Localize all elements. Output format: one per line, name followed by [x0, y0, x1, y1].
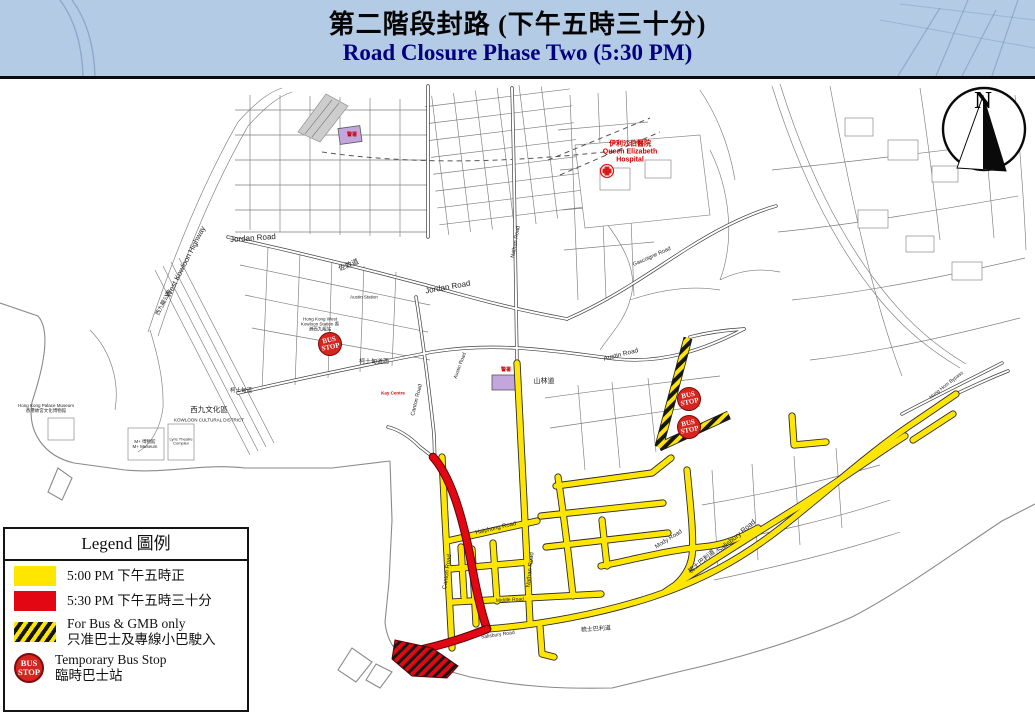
bus-stop-icon: BUSSTOP — [14, 653, 44, 683]
route-phase1-yellow-5pm — [442, 363, 956, 657]
page-title-chinese: 第二階段封路 (下午五時三十分) — [329, 10, 707, 40]
hospital-cross-icon — [601, 165, 614, 178]
title-bar: 第二階段封路 (下午五時三十分) Road Closure Phase Two … — [0, 0, 1035, 79]
minor-streets — [48, 79, 1026, 580]
legend-swatch-red — [14, 591, 56, 611]
legend-row-bus-gmb: For Bus & GMB only 只准巴士及專線小巴駛入 — [5, 611, 247, 647]
road-closure-map-page: 第二階段封路 (下午五時三十分) Road Closure Phase Two … — [0, 0, 1035, 714]
legend-label-temp-bus-stop: Temporary Bus Stop 臨時巴士站 — [55, 652, 167, 683]
legend-row-temp-bus-stop: BUSSTOP Temporary Bus Stop 臨時巴士站 — [5, 647, 247, 683]
compass-rose: N — [936, 80, 1035, 192]
legend-row-phase2: 5:30 PM 下午五時三十分 — [5, 586, 247, 611]
legend-title: Legend 圖例 — [5, 529, 247, 561]
legend-swatch-yellow — [14, 566, 56, 586]
route-phase2-red-530pm — [392, 457, 487, 678]
legend-label-phase1: 5:00 PM 下午五時正 — [67, 568, 185, 584]
compass-north-label: N — [974, 88, 992, 114]
legend-box: Legend 圖例 5:00 PM 下午五時正 5:30 PM 下午五時三十分 … — [3, 527, 249, 712]
legend-label-bus-gmb: For Bus & GMB only 只准巴士及專線小巴駛入 — [67, 616, 216, 647]
legend-row-phase1: 5:00 PM 下午五時正 — [5, 561, 247, 586]
page-title-english: Road Closure Phase Two (5:30 PM) — [343, 40, 692, 65]
legend-label-phase2: 5:30 PM 下午五時三十分 — [67, 593, 212, 609]
legend-swatch-hatched — [14, 622, 56, 642]
